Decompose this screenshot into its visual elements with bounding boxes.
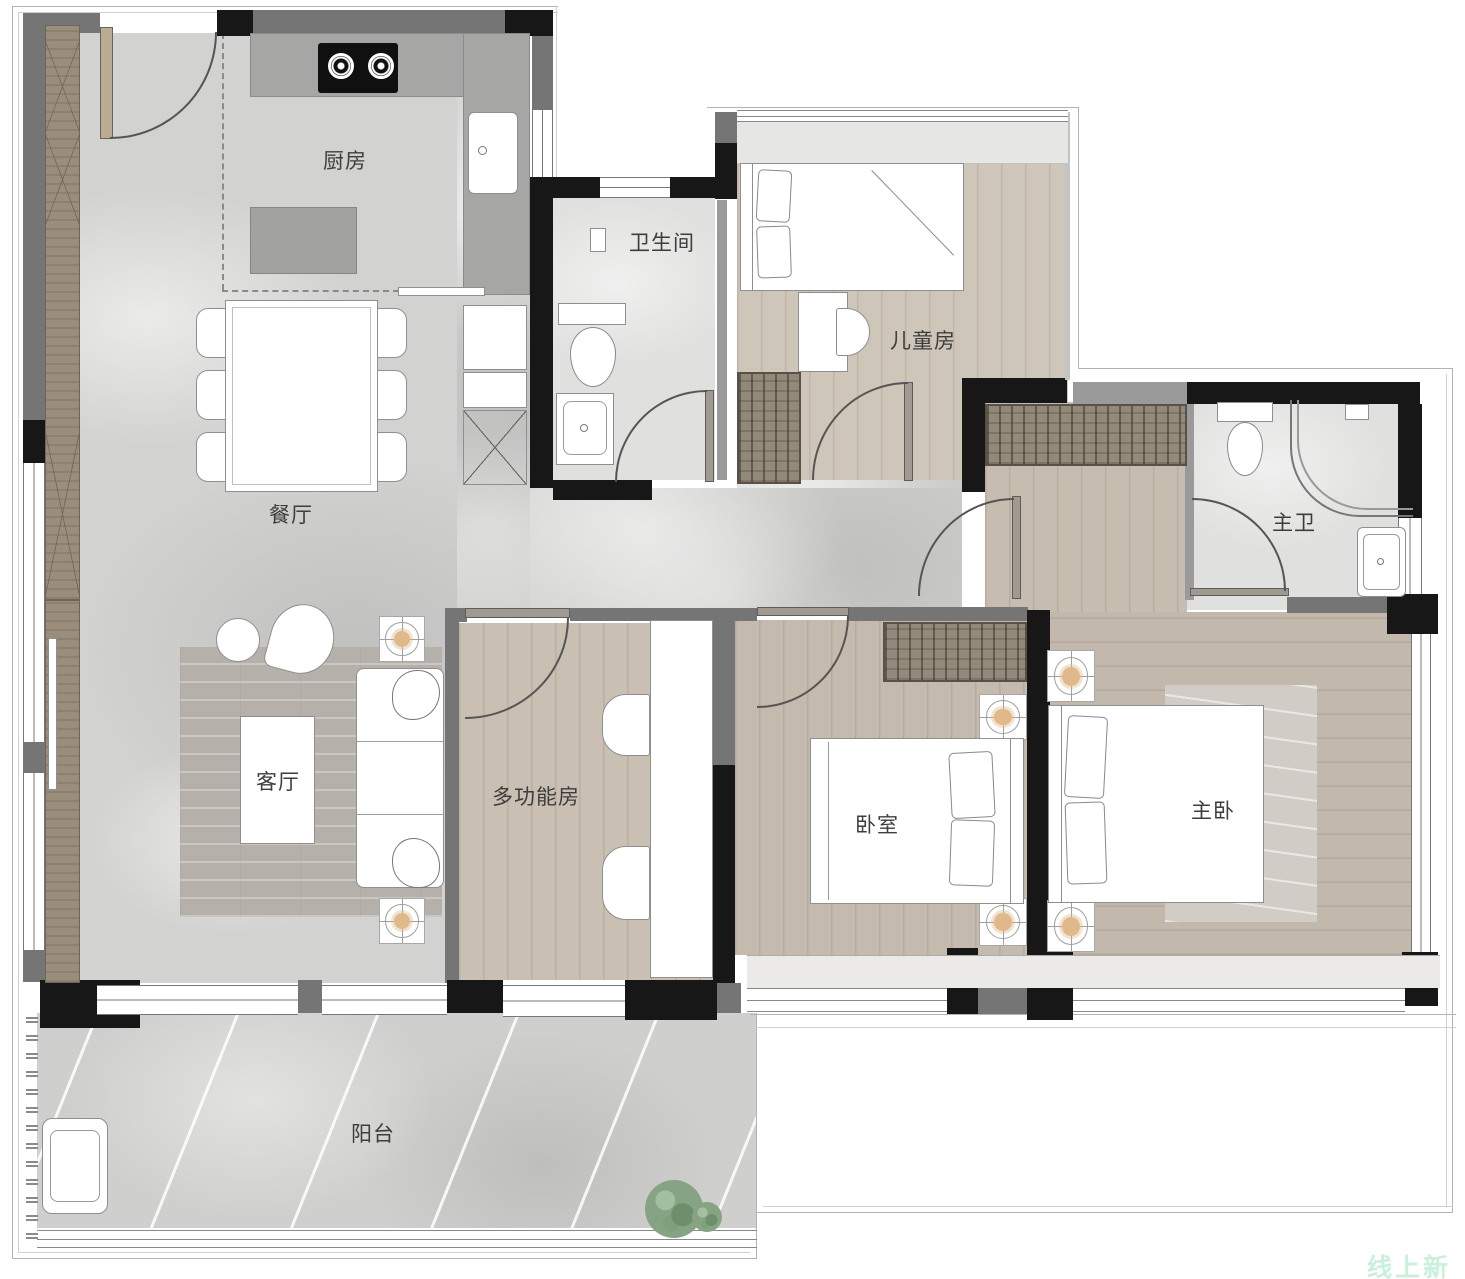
outline-right-inner <box>1446 374 1447 1207</box>
outline-window-sill-1 <box>750 1014 1456 1015</box>
wall-segment <box>553 480 652 500</box>
bedroom-window <box>747 988 947 1012</box>
kitchen-dashed-line-v <box>222 33 224 290</box>
balcony-door-window <box>97 985 298 1015</box>
desk-chair <box>602 846 650 920</box>
pillow <box>948 751 995 819</box>
pillow <box>756 225 792 278</box>
kids-room-window <box>737 110 1068 122</box>
window <box>1411 634 1431 952</box>
outline-left-inner <box>18 12 19 1252</box>
kids-room-label: 儿童房 <box>890 325 956 355</box>
nightstand-lamp <box>979 694 1027 740</box>
wall-segment <box>298 980 322 1013</box>
bedroom-headboard <box>1010 738 1024 904</box>
wall-segment <box>1387 594 1438 634</box>
window <box>23 463 45 742</box>
wall-segment <box>532 33 553 110</box>
wall-segment <box>1073 382 1187 404</box>
bathroom-shelf <box>590 228 606 252</box>
dining-table-inner-line <box>232 307 371 485</box>
tv-panel <box>48 638 57 790</box>
kitchen-cabinet-x-cell <box>463 410 527 485</box>
desk-chair <box>602 694 650 756</box>
wall-segment <box>962 378 1067 403</box>
kitchen-cabinet-cell <box>463 305 527 370</box>
bedroom-blanket-line <box>828 742 829 900</box>
master-bathroom-label: 主卫 <box>1272 507 1316 537</box>
multifunction-desk <box>650 620 713 978</box>
wall-segment <box>670 177 717 198</box>
window <box>600 177 670 198</box>
floorplan-canvas: 厨房 卫生间 儿童房 餐厅 主卫 客厅 多功能房 卧室 主卧 阳台 线上新房 <box>0 0 1465 1279</box>
cabinet-x-mark <box>45 430 80 598</box>
cabinet-x-mark <box>45 133 80 226</box>
balcony-door-window <box>503 985 625 1017</box>
outline-right-step <box>1078 368 1453 369</box>
bathroom-label: 卫生间 <box>629 227 695 257</box>
kids-bed-headboard <box>740 163 753 291</box>
outline-balcony-right <box>756 1013 757 1259</box>
kids-wardrobe <box>737 372 801 484</box>
master-bedroom-window <box>1073 988 1405 1012</box>
wall-segment <box>530 177 553 488</box>
bedroom-label: 卧室 <box>855 809 899 839</box>
cooktop-burner-icon <box>368 53 394 79</box>
wall-segment <box>23 33 45 420</box>
bathroom-faucet-icon <box>580 424 588 432</box>
wall-segment <box>713 620 735 765</box>
wall-segment <box>23 742 45 773</box>
nightstand-lamp <box>979 898 1027 946</box>
pillow <box>949 819 995 886</box>
outline-bottom-inner <box>18 1252 750 1253</box>
dining-room-label: 餐厅 <box>269 499 313 529</box>
nightstand-lamp <box>1047 900 1095 952</box>
shower-head <box>1345 404 1369 420</box>
outline-bottom-right <box>757 1212 1453 1213</box>
window <box>532 110 553 177</box>
balcony-railing-left <box>26 1013 38 1250</box>
hallway-floor <box>530 488 962 612</box>
master-headboard <box>1048 705 1062 903</box>
master-toilet-tank <box>1217 402 1273 422</box>
wall-segment <box>717 200 727 480</box>
cooktop-burner-icon <box>328 53 354 79</box>
pillow <box>756 169 793 223</box>
wall-segment <box>625 980 717 1020</box>
window <box>23 773 45 950</box>
multifunction-room-label: 多功能房 <box>492 781 580 811</box>
outline-right-upper <box>1078 107 1079 369</box>
toilet-tank <box>558 303 626 325</box>
wall-segment <box>553 177 600 198</box>
corridor-wardrobe <box>985 404 1187 466</box>
wall-segment <box>978 988 1027 1014</box>
kitchen-cabinet-cell <box>463 372 527 408</box>
outline-kitchen-step <box>556 6 557 178</box>
kids-room-curtain-box <box>737 122 1068 164</box>
wall-segment <box>23 950 45 982</box>
balcony-washer-inner <box>50 1130 100 1202</box>
wall-segment <box>715 143 737 199</box>
master-bedroom-label: 主卧 <box>1191 795 1235 825</box>
ceiling-lamp <box>379 898 425 944</box>
cabinet-x-mark <box>45 40 80 133</box>
wall-segment <box>717 983 741 1013</box>
pass-through-shelf <box>398 287 485 296</box>
kitchen-faucet-icon <box>478 146 487 155</box>
outline-left <box>12 6 13 1258</box>
side-table-round <box>216 618 260 662</box>
wall-segment <box>1287 597 1389 613</box>
bedroom-door-leaf <box>757 607 849 616</box>
outline-window-sill-2 <box>750 1027 1456 1028</box>
kitchen-label: 厨房 <box>323 145 367 175</box>
wall-segment <box>217 10 253 36</box>
wall-segment <box>23 420 45 464</box>
balcony-railing-bottom <box>37 1230 757 1248</box>
wall-segment <box>713 765 735 983</box>
multifunction-door-leaf <box>465 608 570 618</box>
balcony-label: 阳台 <box>351 1118 395 1148</box>
watermark: 线上新房 <box>1367 1248 1465 1279</box>
outline-bottom <box>12 1258 756 1259</box>
wall-segment <box>447 980 503 1013</box>
outline-top <box>12 6 558 7</box>
wall-segment <box>715 112 737 145</box>
plant-icon <box>692 1202 722 1232</box>
bedroom-wardrobe <box>883 622 1027 682</box>
ceiling-lamp <box>379 616 425 662</box>
wall-segment <box>445 608 467 622</box>
outline-right <box>1452 368 1453 1213</box>
nightstand-lamp <box>1047 650 1095 702</box>
balcony-door-window <box>322 985 447 1015</box>
pillow <box>1064 715 1108 799</box>
outline-kids-top <box>707 107 1079 108</box>
kitchen-sink <box>468 112 518 194</box>
window-sill <box>747 955 1440 988</box>
wall-segment <box>445 610 459 983</box>
refrigerator <box>250 207 357 274</box>
pillow <box>1065 801 1108 884</box>
wall-segment <box>848 607 1028 621</box>
outline-bottom-right-inner <box>763 1206 1453 1207</box>
master-bath-faucet-icon <box>1377 558 1384 565</box>
living-room-label: 客厅 <box>256 766 300 796</box>
